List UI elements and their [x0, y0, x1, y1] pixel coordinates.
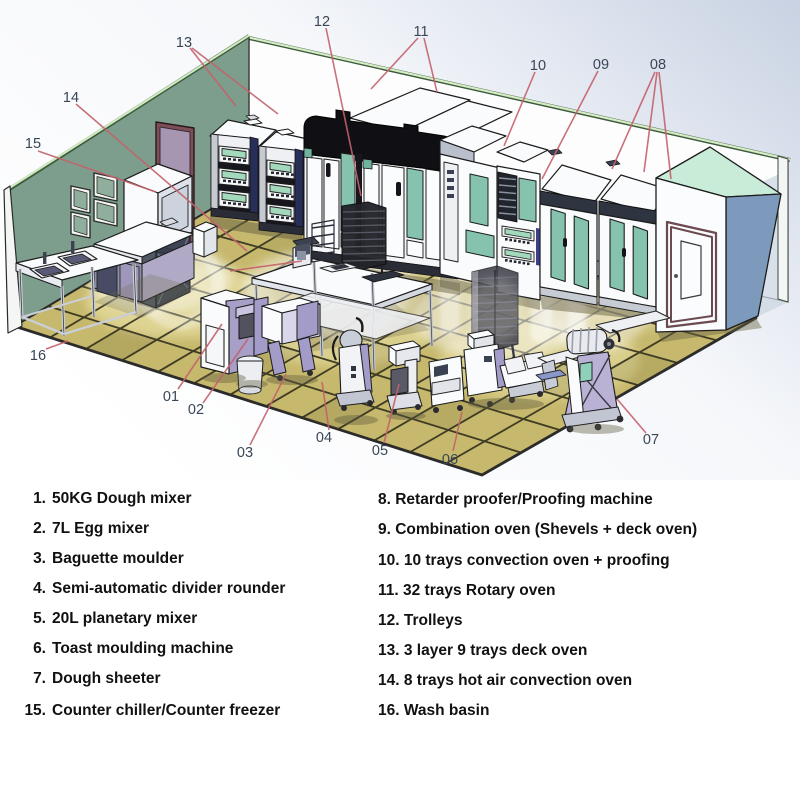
- svg-text:03: 03: [237, 445, 253, 461]
- svg-text:06: 06: [442, 452, 458, 468]
- svg-text:01: 01: [163, 389, 179, 405]
- svg-text:02: 02: [188, 402, 204, 418]
- svg-text:11: 11: [413, 24, 428, 40]
- svg-text:08: 08: [650, 57, 666, 73]
- svg-text:04: 04: [316, 430, 332, 446]
- svg-text:16: 16: [30, 348, 46, 364]
- svg-text:09: 09: [593, 57, 609, 73]
- svg-text:15: 15: [25, 136, 41, 152]
- svg-text:12: 12: [314, 14, 330, 30]
- svg-text:14: 14: [63, 90, 79, 106]
- svg-text:05: 05: [372, 443, 388, 459]
- svg-text:07: 07: [643, 432, 659, 448]
- svg-text:10: 10: [530, 58, 546, 74]
- svg-text:13: 13: [176, 35, 192, 51]
